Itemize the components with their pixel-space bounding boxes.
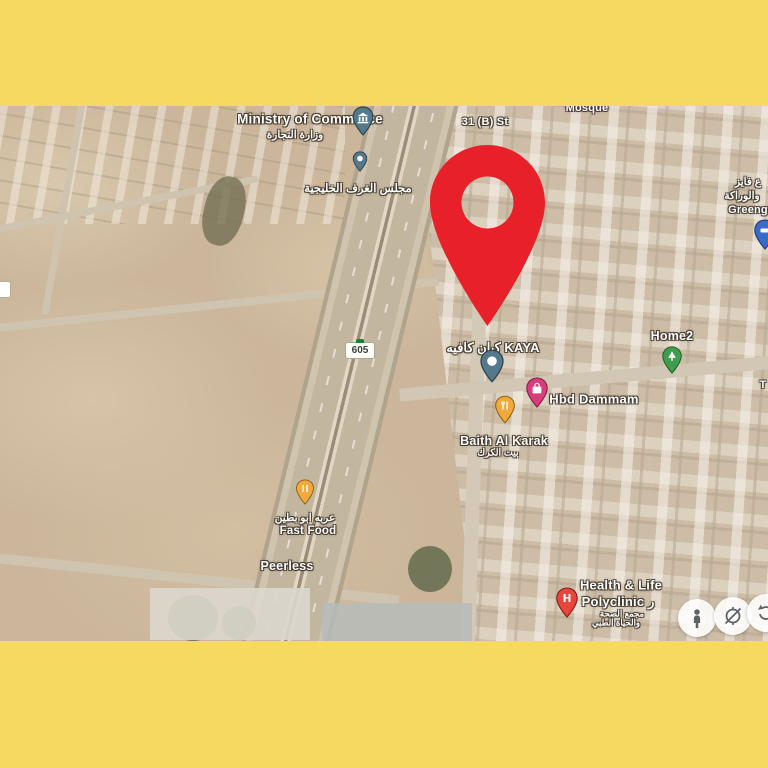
poi-label-right-edge-3[interactable]: Greeng (728, 204, 768, 216)
poi-label-ministry-ar[interactable]: وزارة التجارة (267, 129, 323, 141)
right-edge-blue-pin[interactable] (753, 219, 768, 250)
map-canvas[interactable]: 605 31 (B) St T Mosque Ministry of Comme… (0, 106, 768, 641)
food-poi-pin[interactable] (494, 395, 516, 424)
clipped-poi-icon (0, 282, 10, 297)
compass-off-icon (721, 604, 745, 628)
poi-label-gulf-chambers[interactable]: مجلس الغرف الخليجية (304, 181, 411, 195)
trees (408, 546, 452, 592)
blue-poi-pin-icon (753, 219, 768, 250)
cafe-pin-icon (479, 349, 505, 383)
hospital-pin-icon: H (555, 587, 579, 618)
pegman-button[interactable] (678, 599, 716, 637)
building-cluster (150, 588, 310, 640)
rotate-icon (754, 601, 768, 625)
poi-label-fast-food-ar[interactable]: عربه ابو بطين (275, 512, 335, 524)
poi-label-baith-al-karak[interactable]: Baith Al Karak (460, 434, 548, 448)
pegman-icon (686, 606, 708, 630)
poi-label-baith-al-karak-ar[interactable]: بيت الكرك (477, 448, 518, 459)
poi-label-right-edge-1[interactable]: ع فايز (735, 176, 761, 188)
restaurant-pin-icon (295, 479, 315, 505)
poi-label-polyclinic-ar2[interactable]: والحياة الطبي (592, 618, 640, 629)
generic-pin-icon (352, 151, 368, 172)
poi-label-polyclinic-1[interactable]: Health & Life (580, 578, 662, 593)
street-label-31b: 31 (B) St (462, 116, 508, 128)
kaya-cafe-pin[interactable] (479, 349, 505, 383)
fast-food-pin[interactable] (295, 479, 315, 505)
yellow-frame: 605 31 (B) St T Mosque Ministry of Comme… (0, 0, 768, 768)
poi-label-mosque[interactable]: Mosque (566, 106, 609, 114)
restaurant-pin-icon (494, 395, 516, 424)
polyclinic-hospital-pin[interactable]: H (555, 587, 579, 618)
route-shield-605: 605 (345, 342, 375, 359)
street-label-clipped: T (760, 379, 767, 391)
svg-text:H: H (563, 593, 572, 605)
poi-label-hbd-dammam[interactable]: Hbd Dammam (549, 392, 638, 407)
park-tree-pin-icon (661, 346, 683, 374)
poi-label-peerless[interactable]: Peerless (260, 559, 313, 573)
poi-label-fast-food[interactable]: Fast Food (280, 525, 337, 537)
shopping-pin-icon (525, 377, 549, 408)
poi-label-right-edge-2[interactable]: والوراكة (724, 190, 759, 202)
hbd-dammam-pin[interactable] (525, 377, 549, 408)
home2-park-pin[interactable] (661, 346, 683, 374)
government-building-pin[interactable] (351, 106, 375, 136)
generic-poi-pin[interactable] (352, 151, 368, 172)
government-pin-icon (351, 106, 375, 136)
building-cluster (322, 603, 472, 641)
destination-marker[interactable] (430, 145, 545, 327)
dropped-pin-icon (430, 145, 545, 327)
poi-label-home2[interactable]: Home2 (651, 329, 694, 343)
